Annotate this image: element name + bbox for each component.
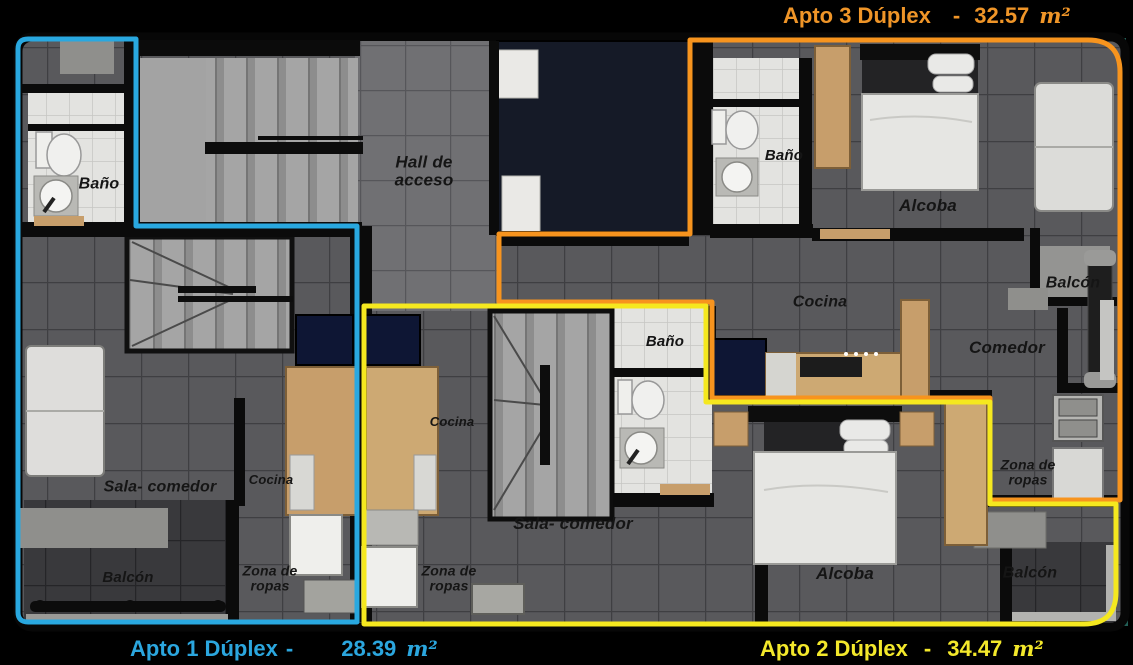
room-label-comedor-apto3: Comedor <box>969 339 1045 357</box>
legend-apto1-unit: m² <box>406 636 437 661</box>
room-label-sala-comedor-apto2: Sala- comedor <box>513 515 633 533</box>
room-label-cocina-apto1: Cocina <box>249 473 294 487</box>
room-label-balcon-apto3: Balcón <box>1046 276 1101 293</box>
legend-apto3-dash: - <box>953 3 960 28</box>
room-label-zona-ropas-apto2: Zona de ropas <box>417 563 481 592</box>
legend-apto2-area: 34.47 <box>947 636 1002 661</box>
room-label-cocina-apto2: Cocina <box>430 415 475 429</box>
legend-apto3-area: 32.57 <box>974 3 1029 28</box>
legend-apto3: Apto 3 Dúplex-32.57m² <box>783 3 1071 33</box>
apto1-staircase <box>127 237 293 351</box>
apto2-staircase <box>490 311 612 519</box>
room-label-bano-apto3: Baño <box>765 148 803 164</box>
room-label-cocina-apto3: Cocina <box>793 295 848 312</box>
legend-apto3-unit: m² <box>1039 3 1070 28</box>
legend-apto2-dash: - <box>924 636 931 661</box>
legend-apto1-name: Apto 1 Dúplex <box>130 636 278 661</box>
room-label-zona-ropas-apto1: Zona de ropas <box>238 563 302 592</box>
room-label-alcoba-apto2: Alcoba <box>816 565 874 583</box>
legend-apto2: Apto 2 Dúplex-34.47m² <box>760 636 1044 665</box>
room-label-sala-comedor-apto1: Sala- comedor <box>104 480 217 497</box>
wood-door <box>820 229 890 239</box>
legend-apto2-unit: m² <box>1012 636 1043 661</box>
room-label-balcon-apto2: Balcón <box>1003 566 1058 583</box>
legend-apto3-name: Apto 3 Dúplex <box>783 3 931 28</box>
legend-apto1: Apto 1 Dúplex-28.39m² <box>130 636 438 665</box>
legend-apto1-area: 28.39 <box>341 636 396 661</box>
legend-apto2-name: Apto 2 Dúplex <box>760 636 908 661</box>
room-label-zona-ropas-apto3: Zona de ropas <box>996 457 1060 486</box>
room-label-alcoba-apto3: Alcoba <box>899 197 957 215</box>
room-label-bano-apto1: Baño <box>79 177 120 194</box>
room-label-hall: Hall de acceso <box>378 153 470 188</box>
floor-plan-drawing <box>0 0 1133 665</box>
main-staircase <box>140 58 363 224</box>
legend-apto1-dash: - <box>286 636 293 661</box>
floor-plan-stage: Baño Hall de acceso Baño Alcoba Balcón C… <box>0 0 1133 665</box>
room-label-balcon-apto1: Balcón <box>102 570 153 586</box>
room-label-bano-apto2: Baño <box>646 334 684 350</box>
